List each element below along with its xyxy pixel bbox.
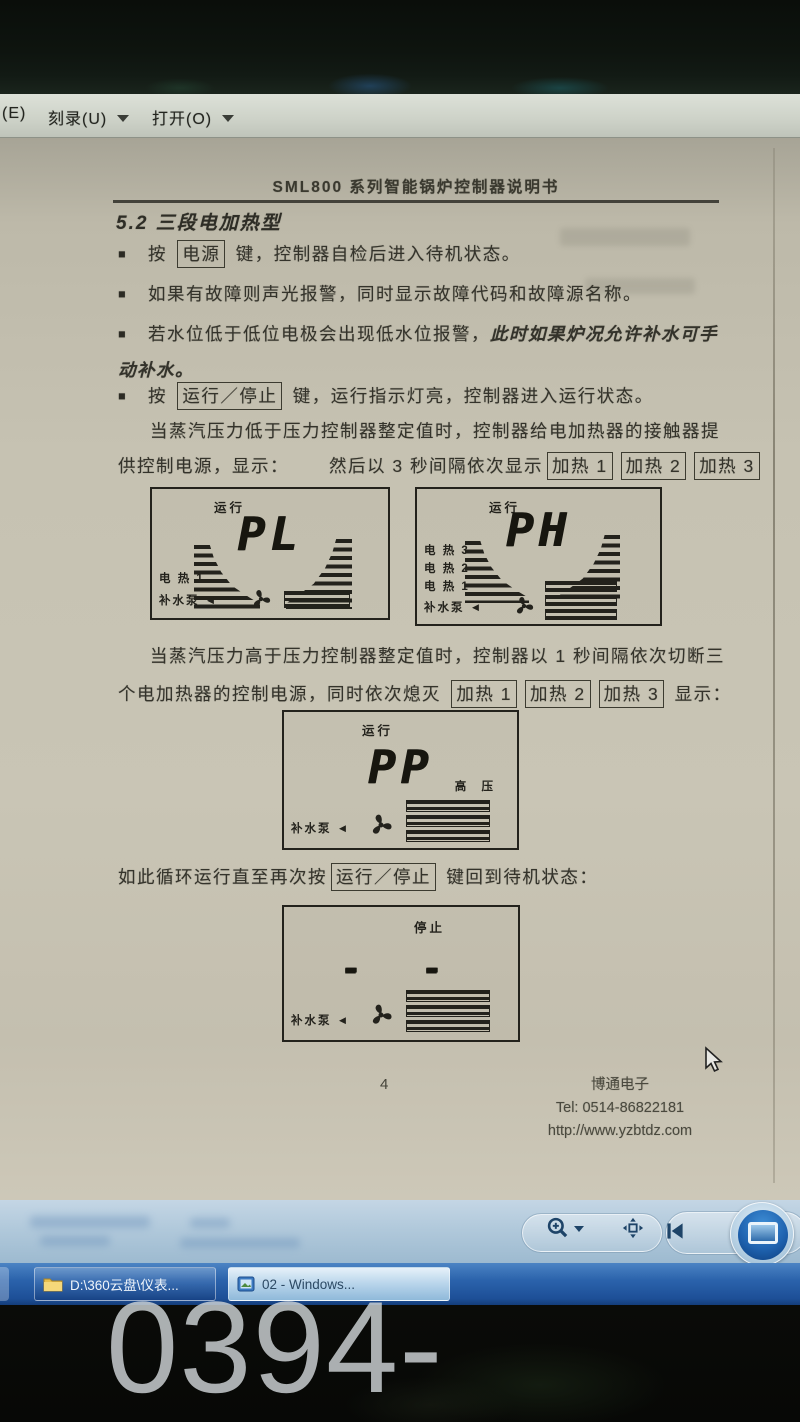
taskbar-button-folder[interactable]: D:\360云盘\仪表... [34,1267,216,1301]
key-heat-3-badge: 加热 3 [694,452,760,480]
text-segment: 个电加热器的控制电源，同时依次熄灭 [118,684,447,704]
slideshow-button[interactable] [730,1202,794,1266]
text-segment: 显示： [668,684,731,704]
chevron-down-icon [222,115,234,122]
slideshow-screen-icon [748,1222,778,1244]
reflection-smudge [40,1236,110,1246]
key-heat-1-badge: 加热 1 [547,452,613,480]
pump-fan-icon [366,1000,396,1030]
text-segment: 按 [148,244,173,264]
doc-line: 动补水。 [118,357,724,382]
text-segment-italic: 此时如果炉况允许补水可手 [490,324,718,344]
panel-status-label: 运行 [362,720,393,739]
panel-status-label: 停止 [414,917,445,936]
viewer-page: SML800 系列智能锅炉控制器说明书 5.2 三段电加热型 ■按 电源 键，控… [0,138,800,1200]
menu-item-partial[interactable]: (E) [2,105,26,123]
doc-line: ■如果有故障则声光报警，同时显示故障代码和故障源名称。 [118,281,724,306]
footer-tel: Tel: 0514-86822181 [520,1097,720,1120]
previous-image-icon[interactable] [662,1218,688,1244]
key-heat-3-badge: 加热 3 [599,680,665,708]
folder-icon [43,1276,63,1292]
reflection-smudge [180,1238,300,1248]
doc-line: ■若水位低于低位电极会出现低水位报警，此时如果炉况允许补水可手 [118,321,724,346]
pump-fan-icon [511,593,537,619]
high-pressure-label: 高 压 [455,778,499,794]
footer-url: http://www.yzbtdz.com [520,1120,720,1143]
doc-line: 当蒸汽压力低于压力控制器整定值时，控制器给电加热器的接触器提 [150,418,756,443]
panel-label: 补水泵 ◄ [159,592,218,608]
panel-value: - - [284,949,518,989]
footer-company: 博通电子 [520,1074,720,1097]
footer-company-block: 博通电子 Tel: 0514-86822181 http://www.yzbtd… [520,1074,720,1143]
page-crease-line [773,148,775,1183]
monitor-photo: (E) 刻录(U) 打开(O) SML800 系列智能锅炉控制器说明书 5.2 … [0,0,800,1422]
doc-line: ■按 运行／停止 键，运行指示灯亮，控制器进入运行状态。 [118,382,724,410]
panel-label: 电 热 3 [424,542,470,558]
text-segment: 键回到待机状态： [440,867,598,887]
text-segment: 当蒸汽压力低于压力控制器整定值时，控制器给电加热器的接触器提 [150,421,720,441]
taskbar-button-label: 02 - Windows... [262,1277,355,1292]
zoom-magnifier-icon[interactable] [545,1215,571,1241]
key-heat-2-badge: 加热 2 [621,452,687,480]
doc-line: 当蒸汽压力高于压力控制器整定值时，控制器以 1 秒间隔依次切断三 [150,643,756,668]
bullet-square-icon: ■ [118,327,148,341]
chevron-down-icon [117,115,129,122]
panel-label: 电 热 2 [424,560,470,576]
reflection-smudge [30,1216,150,1228]
panel-label: 电 热 1 [159,570,205,586]
doc-line: 供控制电源，显示：然后以 3 秒间隔依次显示加热 1加热 2加热 3 [118,452,724,480]
menu-item-open[interactable]: 打开(O) [152,105,234,129]
text-segment: 如此循环运行直至再次按 [118,867,327,887]
lcd-panel-ph: 运行 PH 电 热 3 电 热 2 电 热 1 补水泵 ◄ [415,487,662,626]
menu-item-burn-label: 刻录(U) [48,111,107,128]
panel-label: 补水泵 ◄ [291,1012,350,1028]
taskbar-button-label: D:\360云盘\仪表... [70,1274,179,1294]
doc-line: 如此循环运行直至再次按运行／停止 键回到待机状态： [118,863,724,891]
key-heat-1-badge: 加热 1 [451,680,517,708]
header-rule [113,200,719,203]
chevron-down-icon[interactable] [574,1226,584,1232]
taskbar-edge-button[interactable] [0,1267,9,1301]
heater-segment-icon [545,581,617,620]
pump-fan-icon [248,586,274,612]
desk-area [0,1305,800,1422]
taskbar-button-photo-viewer[interactable]: 02 - Windows... [228,1267,450,1301]
key-heat-2-badge: 加热 2 [525,680,591,708]
menu-item-open-label: 打开(O) [152,111,212,128]
text-segment: 键，运行指示灯亮，控制器进入运行状态。 [286,386,653,406]
fit-to-window-icon[interactable] [622,1217,644,1239]
footer-page-number: 4 [380,1076,388,1093]
text-segment: 然后以 3 秒间隔依次显示 [329,456,543,476]
text-segment: 按 [148,386,173,406]
heater-segment-icon [406,800,490,842]
reflection-smudge [190,1218,230,1228]
bullet-square-icon: ■ [118,389,148,403]
viewer-toolbar [0,1200,800,1263]
key-power-badge: 电源 [177,240,225,268]
taskbar: D:\360云盘\仪表... 02 - Windows... [0,1263,800,1305]
text-segment: 键，控制器自检后进入待机状态。 [229,244,520,264]
section-heading: 5.2 三段电加热型 [116,208,282,235]
panel-label: 补水泵 ◄ [424,599,483,615]
panel-label: 电 热 1 [424,578,470,594]
text-segment: 当蒸汽压力高于压力控制器整定值时，控制器以 1 秒间隔依次切断三 [150,646,725,666]
key-run-stop-badge: 运行／停止 [177,382,282,410]
panel-label: 补水泵 ◄ [291,820,350,836]
text-segment: 若水位低于低位电极会出现低水位报警， [148,324,490,344]
lcd-panel-pl: 运行 PL 电 热 1 补水泵 ◄ [150,487,390,620]
heater-segment-icon [284,591,350,608]
text-segment: 供控制电源，显示： [118,456,289,476]
doc-header-title: SML800 系列智能锅炉控制器说明书 [115,175,717,197]
menu-item-burn[interactable]: 刻录(U) [48,105,129,129]
lcd-panel-stop: 停止 - - 补水泵 ◄ [282,905,520,1042]
photo-viewer-icon [237,1276,255,1292]
mouse-cursor [702,1046,726,1076]
text-segment: 如果有故障则声光报警，同时显示故障代码和故障源名称。 [148,284,642,304]
bullet-square-icon: ■ [118,247,148,261]
doc-line: ■按 电源 键，控制器自检后进入待机状态。 [118,240,724,268]
bullet-square-icon: ■ [118,287,148,301]
panel-value: PL [152,507,388,561]
text-segment-italic: 动补水。 [118,360,194,380]
doc-line: 个电加热器的控制电源，同时依次熄灭 加热 1加热 2加热 3 显示： [118,680,724,708]
lcd-panel-pp: 运行 PP 高 压 补水泵 ◄ [282,710,519,850]
pump-fan-icon [366,810,396,840]
monitor-top-bezel [0,0,800,94]
heater-segment-icon [406,990,490,1032]
viewer-menubar: (E) 刻录(U) 打开(O) [0,94,800,138]
key-run-stop-badge: 运行／停止 [331,863,436,891]
